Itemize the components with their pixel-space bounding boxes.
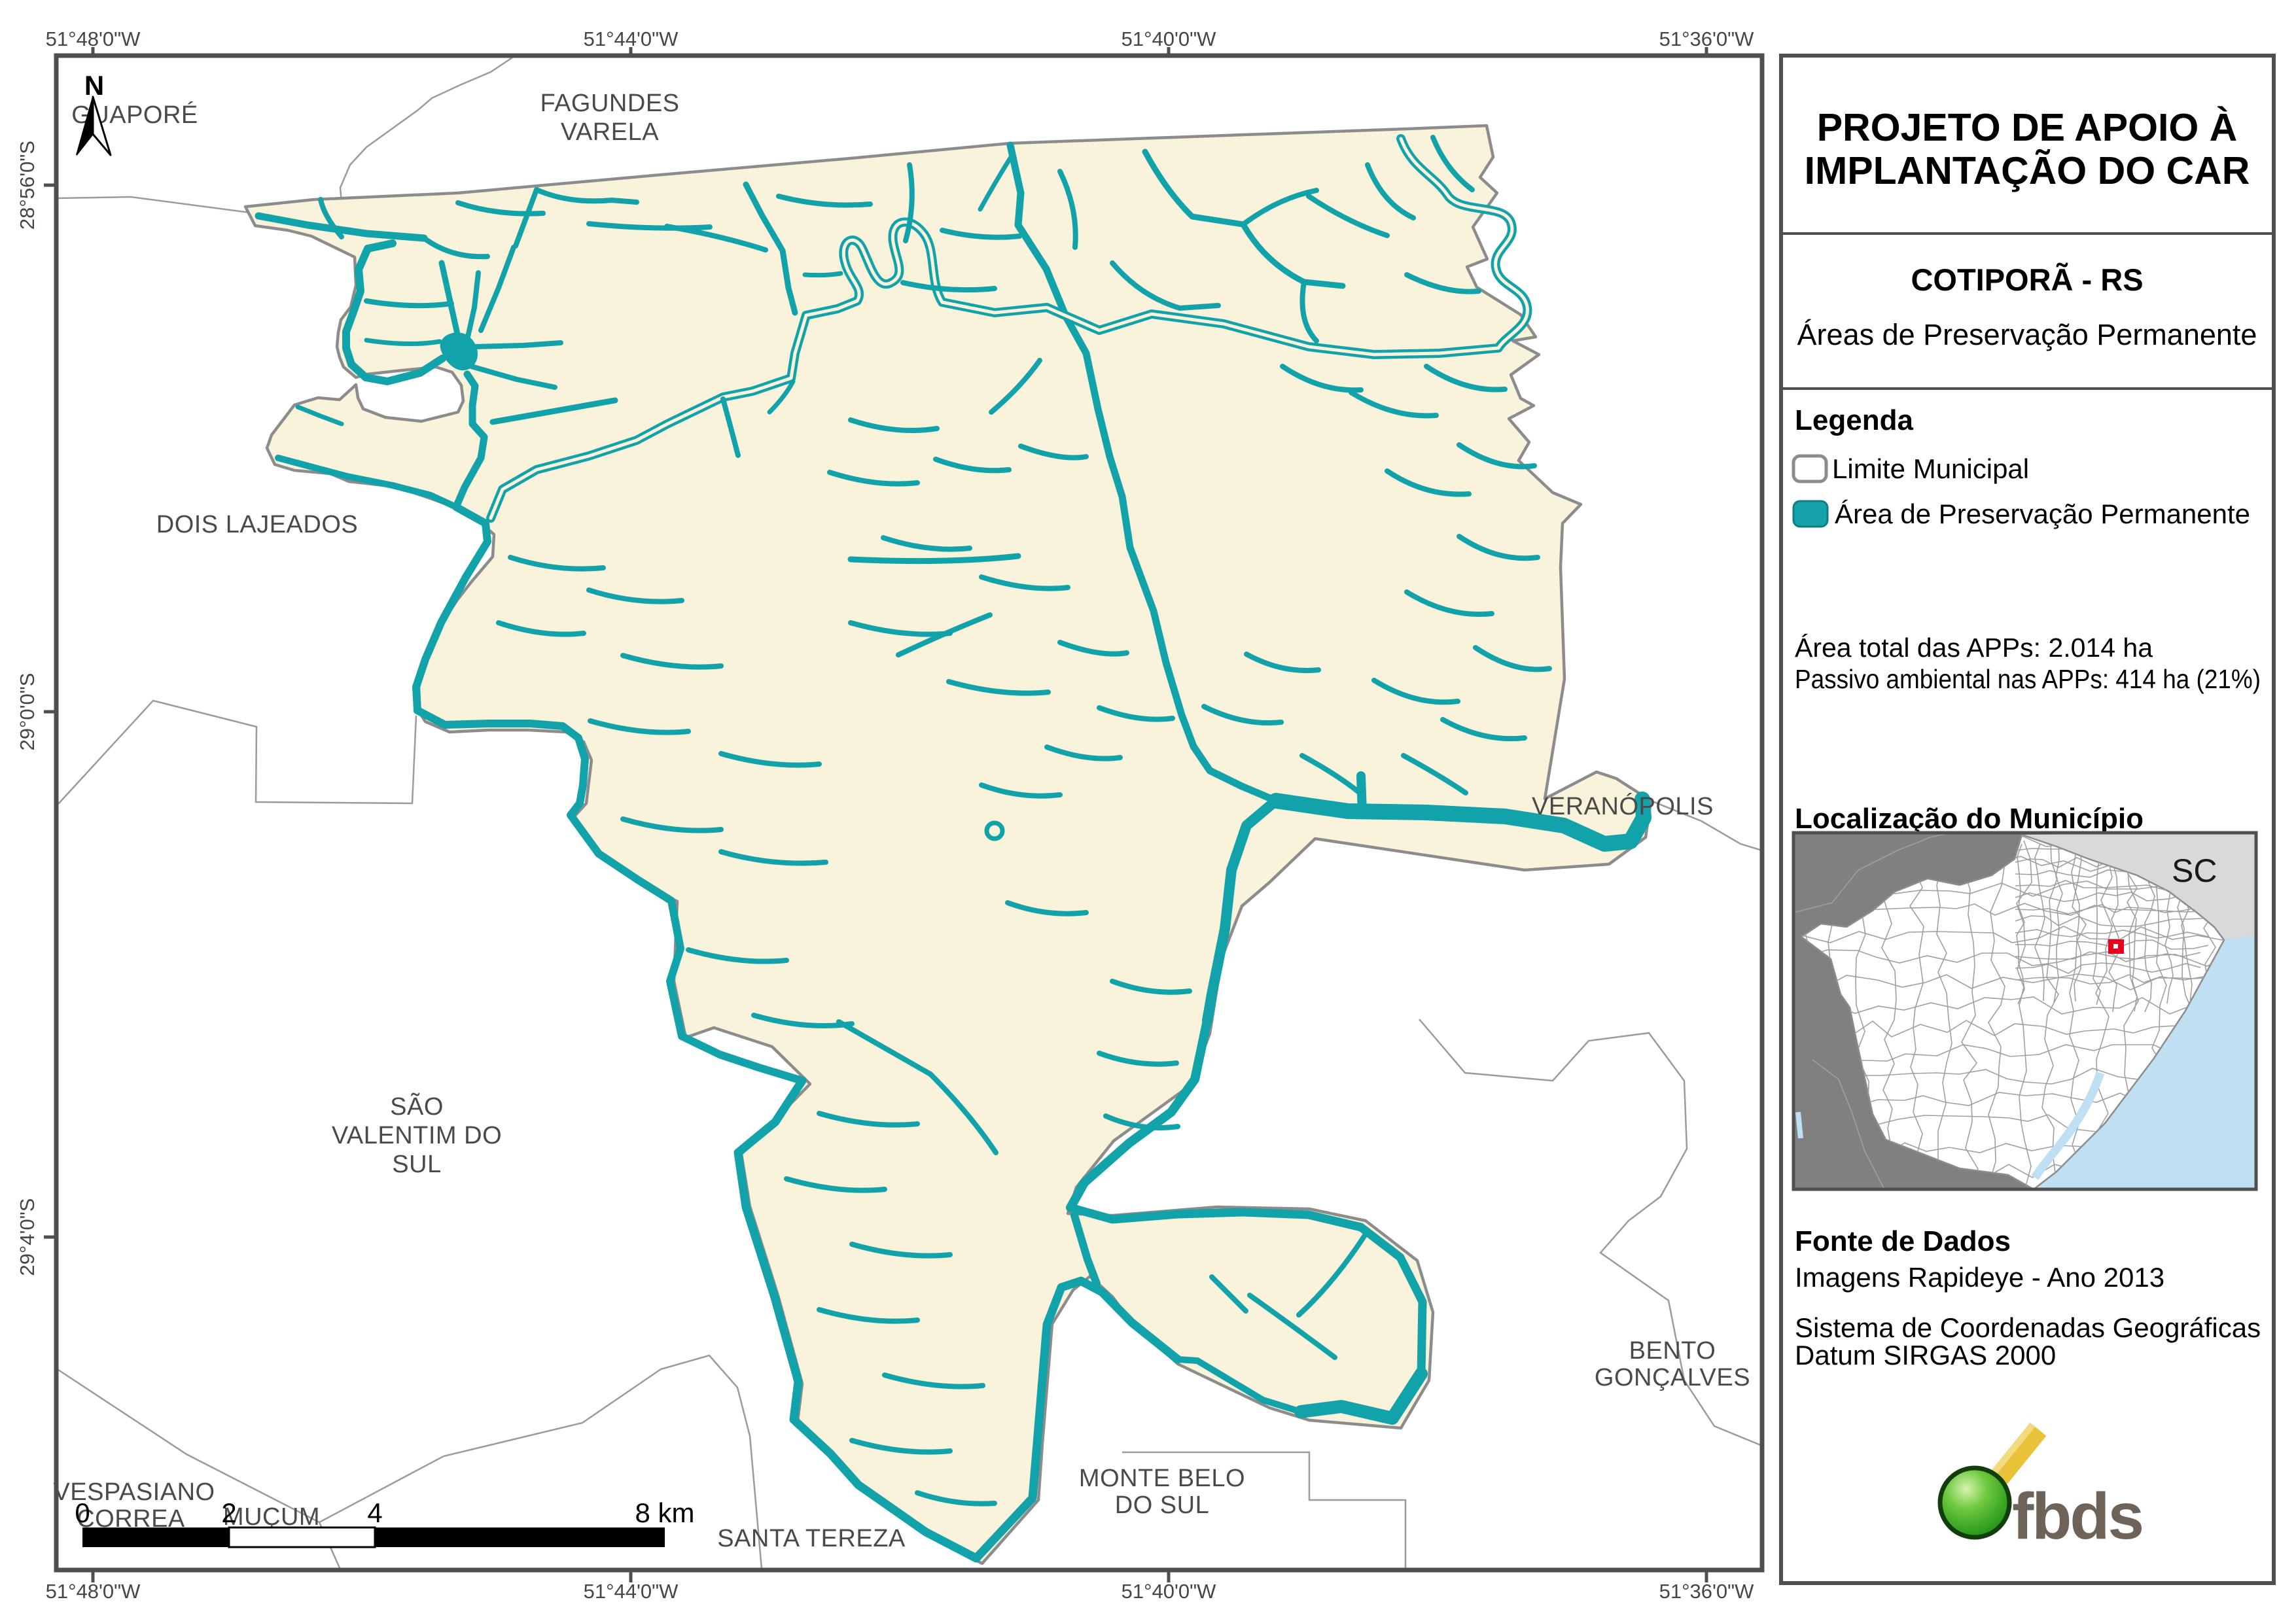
svg-text:VARELA: VARELA [561,118,659,146]
svg-text:Limite Municipal: Limite Municipal [1832,453,2029,484]
svg-text:29°0'0"S: 29°0'0"S [16,673,39,751]
svg-text:Legenda: Legenda [1795,404,1913,436]
svg-text:Passivo ambiental nas APPs: 41: Passivo ambiental nas APPs: 414 ha (21%) [1795,664,2261,694]
svg-text:51°48'0"W: 51°48'0"W [46,1580,141,1603]
svg-text:SC: SC [2172,852,2217,889]
svg-text:51°40'0"W: 51°40'0"W [1122,27,1217,50]
svg-text:VALENTIM DO: VALENTIM DO [332,1122,502,1149]
svg-text:28°56'0"S: 28°56'0"S [16,141,39,230]
svg-text:Imagens Rapideye - Ano 2013: Imagens Rapideye - Ano 2013 [1795,1262,2164,1293]
svg-text:51°36'0"W: 51°36'0"W [1659,27,1755,50]
svg-text:0: 0 [75,1497,90,1528]
svg-text:SUL: SUL [392,1151,441,1178]
svg-text:51°44'0"W: 51°44'0"W [584,27,679,50]
svg-text:FAGUNDES: FAGUNDES [540,90,679,117]
svg-text:Sistema de Coordenadas Geográf: Sistema de Coordenadas Geográficas [1795,1312,2261,1343]
svg-text:PROJETO DE APOIO À: PROJETO DE APOIO À [1817,106,2238,149]
svg-text:DO SUL: DO SUL [1115,1492,1209,1519]
svg-text:GONÇALVES: GONÇALVES [1595,1364,1750,1391]
svg-text:Fonte de Dados: Fonte de Dados [1795,1225,2011,1257]
svg-text:Área de Preservação Permanente: Área de Preservação Permanente [1835,498,2250,529]
svg-text:29°4'0"S: 29°4'0"S [16,1198,39,1276]
svg-text:4: 4 [367,1497,382,1528]
svg-text:N: N [84,70,104,101]
svg-text:51°36'0"W: 51°36'0"W [1659,1580,1755,1603]
svg-text:DOIS LAJEADOS: DOIS LAJEADOS [156,511,358,538]
svg-text:VERANÓPOLIS: VERANÓPOLIS [1532,792,1714,820]
svg-text:8 km: 8 km [635,1497,694,1528]
svg-text:Áreas de Preservação Permanent: Áreas de Preservação Permanente [1797,318,2257,351]
svg-text:MONTE BELO: MONTE BELO [1079,1465,1245,1492]
svg-text:SÃO: SÃO [390,1092,444,1121]
svg-text:COTIPORÃ - RS: COTIPORÃ - RS [1911,262,2143,297]
svg-text:Datum SIRGAS 2000: Datum SIRGAS 2000 [1795,1340,2056,1370]
svg-text:SANTA TEREZA: SANTA TEREZA [717,1525,906,1552]
svg-text:51°48'0"W: 51°48'0"W [46,27,141,50]
svg-text:fbds: fbds [2012,1480,2142,1553]
svg-text:Área total das APPs: 2.014 ha: Área total das APPs: 2.014 ha [1795,633,2153,663]
svg-text:51°44'0"W: 51°44'0"W [584,1580,679,1603]
svg-text:IMPLANTAÇÃO DO CAR: IMPLANTAÇÃO DO CAR [1805,149,2250,192]
svg-text:BENTO: BENTO [1629,1337,1716,1365]
svg-text:2: 2 [221,1497,236,1528]
svg-text:51°40'0"W: 51°40'0"W [1122,1580,1217,1603]
svg-text:Localização do Município: Localização do Município [1795,803,2144,835]
